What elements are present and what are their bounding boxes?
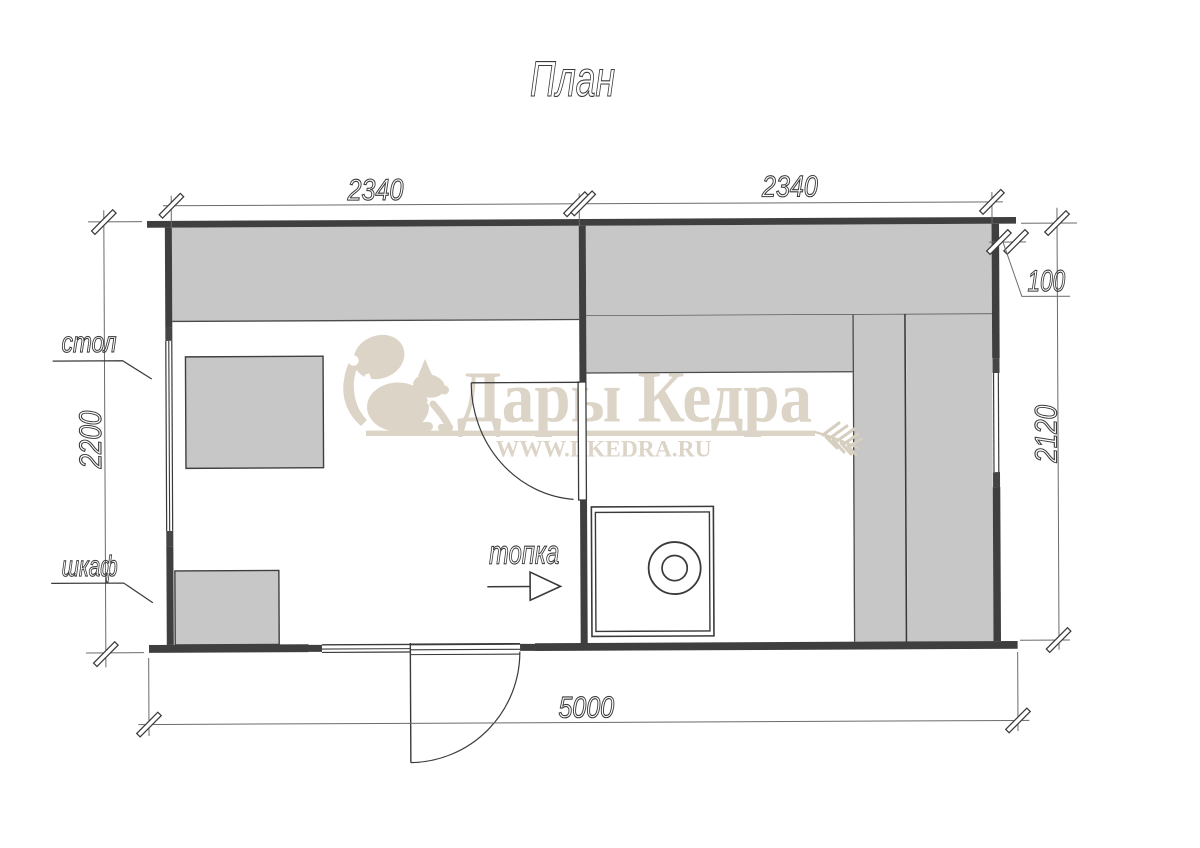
svg-text:WWW.DKEDRA.RU: WWW.DKEDRA.RU bbox=[496, 437, 712, 463]
svg-text:стол: стол bbox=[62, 325, 117, 359]
svg-text:Дары Кедра: Дары Кедра bbox=[457, 356, 812, 437]
svg-text:шкаф: шкаф bbox=[62, 551, 118, 583]
svg-text:5000: 5000 bbox=[558, 690, 614, 724]
svg-text:2120: 2120 bbox=[1029, 405, 1064, 464]
svg-text:План: План bbox=[530, 52, 615, 107]
svg-text:2340: 2340 bbox=[761, 169, 818, 203]
svg-text:топка: топка bbox=[489, 535, 559, 572]
svg-text:2200: 2200 bbox=[74, 411, 109, 470]
svg-text:100: 100 bbox=[1027, 264, 1065, 298]
svg-text:2340: 2340 bbox=[347, 173, 404, 207]
